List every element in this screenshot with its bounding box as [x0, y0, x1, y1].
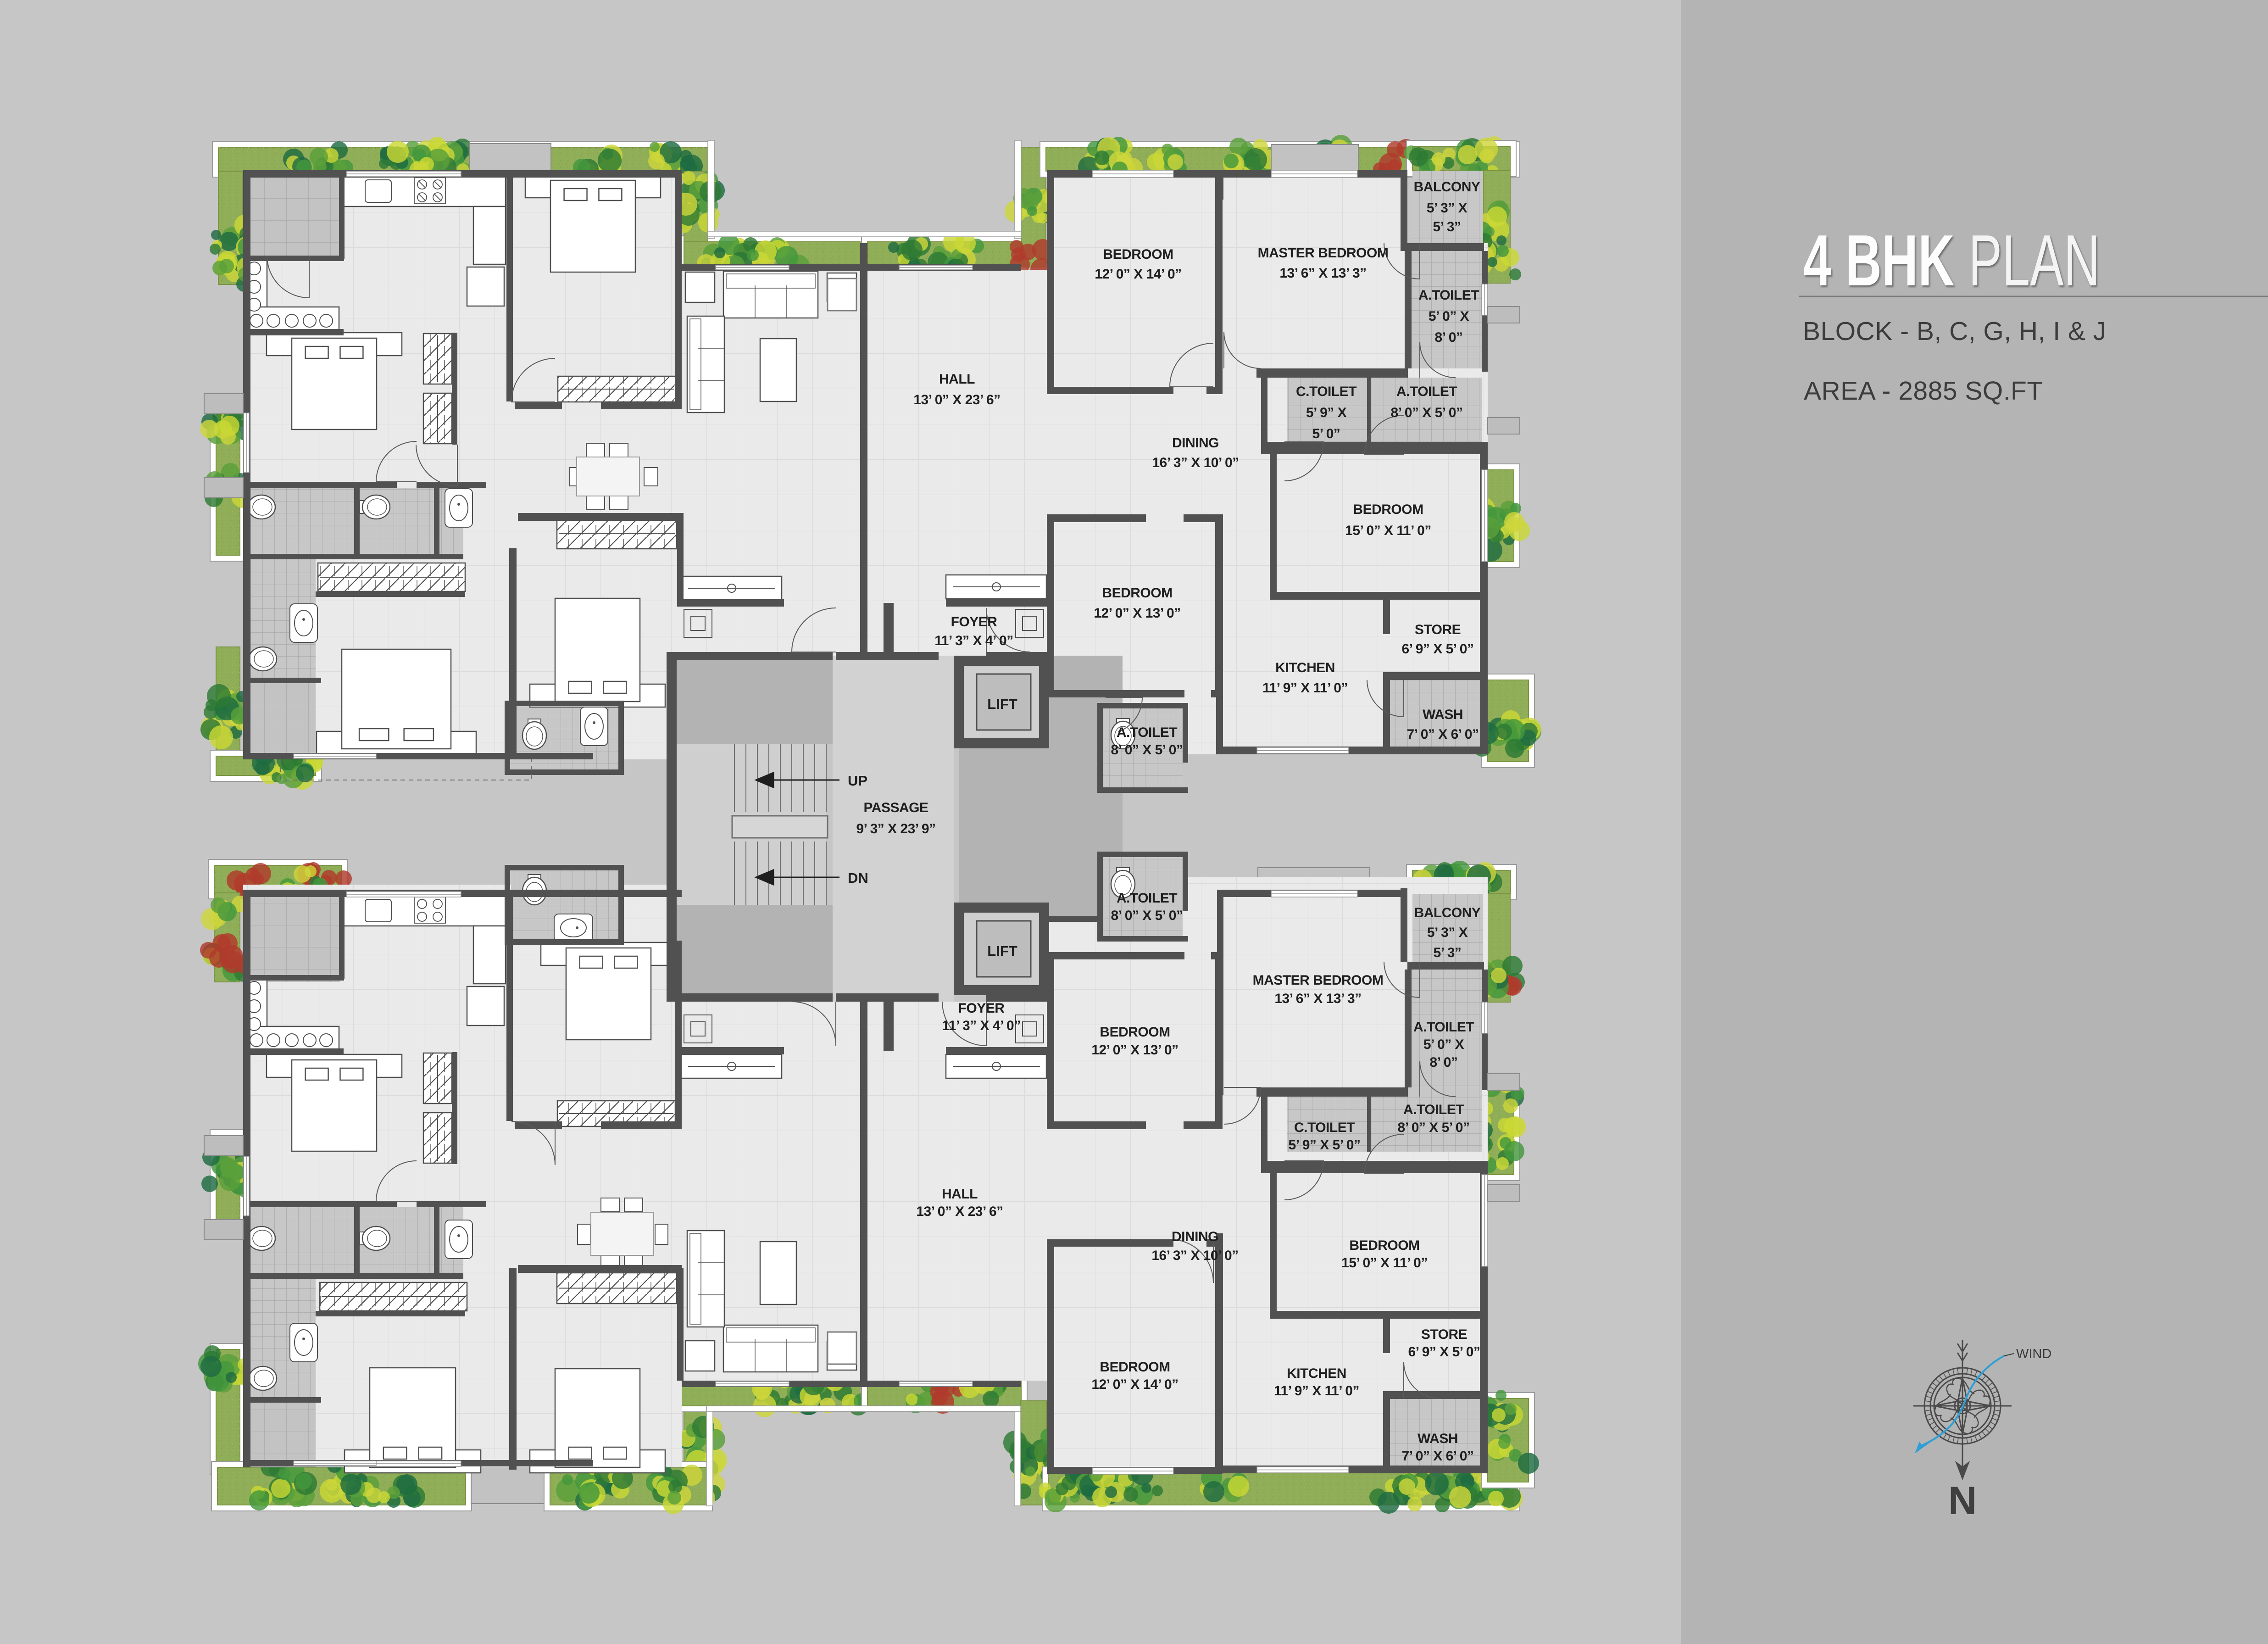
- svg-text:DINING: DINING: [1172, 435, 1219, 451]
- svg-text:MASTER BEDROOM: MASTER BEDROOM: [1253, 973, 1384, 988]
- svg-text:13’ 0” X 23’ 6”: 13’ 0” X 23’ 6”: [916, 1204, 1003, 1219]
- svg-text:5’ 9” X: 5’ 9” X: [1306, 405, 1347, 420]
- svg-text:15’ 0” X 11’ 0”: 15’ 0” X 11’ 0”: [1345, 523, 1431, 538]
- svg-text:12’ 0” X 14’ 0”: 12’ 0” X 14’ 0”: [1095, 267, 1181, 282]
- svg-text:5’ 3” X: 5’ 3” X: [1427, 925, 1468, 940]
- svg-text:BLOCK - B, C, G, H, I & J: BLOCK - B, C, G, H, I & J: [1803, 317, 2107, 346]
- svg-text:12’ 0” X 14’ 0”: 12’ 0” X 14’ 0”: [1091, 1377, 1178, 1392]
- svg-text:BEDROOM: BEDROOM: [1100, 1360, 1170, 1375]
- svg-text:HALL: HALL: [939, 372, 975, 387]
- svg-text:PASSAGE: PASSAGE: [864, 800, 928, 815]
- svg-text:8’ 0”: 8’ 0”: [1430, 1055, 1458, 1070]
- svg-text:MASTER BEDROOM: MASTER BEDROOM: [1258, 245, 1389, 261]
- svg-text:BEDROOM: BEDROOM: [1103, 247, 1173, 262]
- svg-text:5’ 0” X: 5’ 0” X: [1429, 309, 1469, 324]
- svg-text:8’ 0”: 8’ 0”: [1435, 330, 1463, 345]
- svg-text:KITCHEN: KITCHEN: [1275, 660, 1335, 675]
- svg-text:A.TOILET: A.TOILET: [1403, 1102, 1464, 1117]
- svg-text:4 BHK PLAN: 4 BHK PLAN: [1803, 220, 2100, 301]
- svg-text:7’ 0” X 6’ 0”: 7’ 0” X 6’ 0”: [1402, 1449, 1474, 1464]
- svg-text:13’ 6” X 13’ 3”: 13’ 6” X 13’ 3”: [1279, 266, 1366, 281]
- svg-text:A.TOILET: A.TOILET: [1418, 288, 1479, 303]
- svg-text:5’ 9” X 5’ 0”: 5’ 9” X 5’ 0”: [1289, 1137, 1361, 1153]
- svg-text:STORE: STORE: [1415, 622, 1461, 637]
- svg-text:5’ 3” X: 5’ 3” X: [1427, 201, 1468, 216]
- svg-text:11’ 3” X 4’ 0”: 11’ 3” X 4’ 0”: [934, 633, 1013, 648]
- svg-text:12’ 0” X 13’ 0”: 12’ 0” X 13’ 0”: [1091, 1042, 1178, 1058]
- svg-text:N: N: [1948, 1479, 1977, 1523]
- svg-text:WASH: WASH: [1423, 707, 1463, 722]
- svg-text:WIND: WIND: [2016, 1347, 2051, 1361]
- svg-text:UP: UP: [848, 773, 867, 789]
- svg-text:13’ 0” X 23’ 6”: 13’ 0” X 23’ 6”: [913, 392, 1000, 407]
- svg-text:STORE: STORE: [1421, 1327, 1467, 1342]
- svg-text:8’ 0” X 5’ 0”: 8’ 0” X 5’ 0”: [1398, 1120, 1470, 1135]
- svg-text:A.TOILET: A.TOILET: [1396, 384, 1457, 399]
- svg-text:C.TOILET: C.TOILET: [1296, 384, 1356, 399]
- svg-text:5’ 0” X: 5’ 0” X: [1423, 1037, 1464, 1052]
- svg-text:BEDROOM: BEDROOM: [1102, 585, 1172, 601]
- svg-text:13’ 6” X 13’ 3”: 13’ 6” X 13’ 3”: [1274, 991, 1361, 1006]
- svg-text:AREA - 2885 SQ.FT: AREA - 2885 SQ.FT: [1804, 376, 2043, 406]
- svg-text:5’ 3”: 5’ 3”: [1433, 219, 1461, 234]
- svg-text:11’ 3” X 4’ 0”: 11’ 3” X 4’ 0”: [942, 1018, 1020, 1033]
- svg-text:A.TOILET: A.TOILET: [1413, 1020, 1474, 1035]
- svg-text:DN: DN: [848, 870, 868, 886]
- svg-text:11’ 9” X 11’ 0”: 11’ 9” X 11’ 0”: [1274, 1383, 1359, 1399]
- svg-text:8’ 0” X 5’ 0”: 8’ 0” X 5’ 0”: [1391, 405, 1463, 420]
- svg-text:WASH: WASH: [1417, 1431, 1458, 1446]
- svg-text:DINING: DINING: [1172, 1229, 1218, 1244]
- svg-text:BEDROOM: BEDROOM: [1349, 1238, 1419, 1253]
- svg-text:LIFT: LIFT: [987, 696, 1017, 712]
- svg-text:9’ 3” X 23’ 9”: 9’ 3” X 23’ 9”: [856, 821, 935, 836]
- svg-text:15’ 0” X 11’ 0”: 15’ 0” X 11’ 0”: [1341, 1255, 1428, 1271]
- svg-text:LIFT: LIFT: [987, 943, 1017, 959]
- svg-text:BEDROOM: BEDROOM: [1353, 502, 1423, 517]
- svg-text:HALL: HALL: [942, 1187, 978, 1202]
- svg-text:6’ 9” X 5’ 0”: 6’ 9” X 5’ 0”: [1402, 641, 1474, 657]
- svg-text:A.TOILET: A.TOILET: [1117, 891, 1177, 906]
- svg-text:5’ 0”: 5’ 0”: [1312, 426, 1340, 441]
- svg-text:7’ 0” X 6’ 0”: 7’ 0” X 6’ 0”: [1407, 727, 1479, 742]
- svg-text:5’ 3”: 5’ 3”: [1434, 945, 1462, 960]
- svg-text:BALCONY: BALCONY: [1414, 179, 1480, 195]
- svg-text:8’ 0” X 5’ 0”: 8’ 0” X 5’ 0”: [1111, 908, 1183, 923]
- svg-text:6’ 9” X 5’ 0”: 6’ 9” X 5’ 0”: [1408, 1344, 1480, 1360]
- svg-text:FOYER: FOYER: [951, 614, 998, 630]
- svg-text:16’ 3” X 10’ 0”: 16’ 3” X 10’ 0”: [1151, 1248, 1238, 1263]
- svg-text:16’ 3” X 10’ 0”: 16’ 3” X 10’ 0”: [1152, 455, 1239, 470]
- svg-text:8’ 0” X 5’ 0”: 8’ 0” X 5’ 0”: [1111, 742, 1183, 758]
- svg-text:FOYER: FOYER: [958, 1001, 1005, 1016]
- svg-text:KITCHEN: KITCHEN: [1287, 1366, 1346, 1381]
- svg-text:BALCONY: BALCONY: [1414, 905, 1481, 920]
- svg-text:A.TOILET: A.TOILET: [1117, 725, 1177, 740]
- svg-text:11’ 9” X 11’ 0”: 11’ 9” X 11’ 0”: [1262, 680, 1348, 696]
- svg-text:BEDROOM: BEDROOM: [1100, 1025, 1170, 1040]
- svg-text:C.TOILET: C.TOILET: [1294, 1120, 1355, 1135]
- svg-text:12’ 0” X 13’ 0”: 12’ 0” X 13’ 0”: [1094, 606, 1180, 621]
